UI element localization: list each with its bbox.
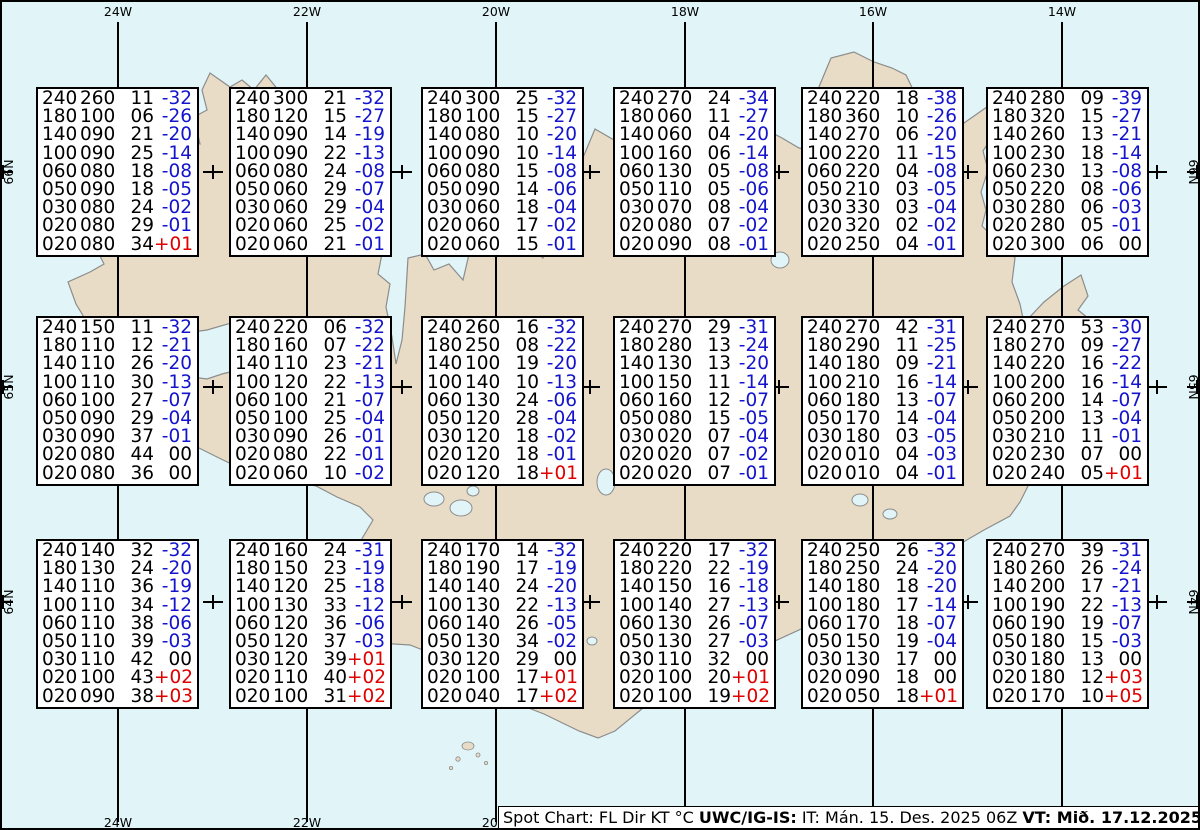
station-data-row: 14009021-20 (42, 126, 197, 144)
station-data-row: 14018009-21 (807, 355, 962, 373)
island (462, 742, 474, 750)
wind-direction: 090 (80, 126, 123, 144)
station-data-row: 14006004-20 (619, 126, 774, 144)
flight-level: 020 (807, 465, 845, 483)
wind-speed-kt: 24 (508, 578, 539, 596)
temperature-c: -19 (347, 126, 390, 144)
lake (883, 509, 897, 519)
flight-level: 020 (992, 688, 1030, 706)
latitude-label-left-66N: 66N (2, 155, 16, 189)
station-box-9: 24026016-3218025008-2214010019-201001401… (421, 316, 584, 486)
flight-level: 020 (42, 465, 80, 483)
wind-speed-kt: 23 (316, 355, 347, 373)
station-box-17: 24025026-3218025024-2014018018-201001801… (801, 539, 964, 709)
wind-direction: 080 (80, 217, 123, 235)
flight-level: 140 (807, 355, 845, 373)
graticule-cross (203, 380, 223, 394)
station-data-row: 02006021-01 (235, 236, 390, 254)
station-box-3: 24030025-3218010015-2714008010-201000901… (421, 87, 584, 257)
latitude-label-left-64N: 64N (2, 585, 16, 619)
wind-speed-kt: 17 (1073, 578, 1104, 596)
flight-level: 140 (427, 126, 465, 144)
station-data-row: 14022016-22 (992, 355, 1147, 373)
flight-level: 020 (427, 465, 465, 483)
station-data-row: 14011023-21 (235, 355, 390, 373)
temperature-c: -20 (919, 126, 962, 144)
flight-level: 020 (619, 688, 657, 706)
wind-speed-kt: 20 (700, 669, 731, 687)
wind-direction: 270 (845, 126, 888, 144)
flight-level: 020 (235, 669, 273, 687)
wind-speed-kt: 12 (1073, 669, 1104, 687)
station-data-row: 02006017-02 (427, 217, 582, 235)
station-data-row: 02008007-02 (619, 217, 774, 235)
wind-direction: 110 (80, 355, 123, 373)
wind-direction: 080 (657, 217, 700, 235)
station-data-row: 02008034+01 (42, 236, 197, 254)
wind-direction: 100 (273, 688, 316, 706)
flight-level: 140 (42, 578, 80, 596)
longitude-label-bottom-22W: 22W (293, 815, 321, 830)
temperature-c: -21 (919, 355, 962, 373)
temperature-c: 00 (1104, 446, 1147, 464)
wind-direction: 180 (845, 578, 888, 596)
flight-level: 020 (619, 236, 657, 254)
station-data-row: 02010031+02 (235, 688, 390, 706)
station-data-row: 02001004-01 (807, 465, 962, 483)
wind-speed-kt: 19 (700, 688, 731, 706)
wind-speed-kt: 36 (123, 578, 154, 596)
temperature-c: +03 (154, 688, 198, 706)
flight-level: 020 (427, 236, 465, 254)
wind-speed-kt: 17 (508, 217, 539, 235)
wind-direction: 120 (273, 578, 316, 596)
flight-level: 020 (235, 446, 273, 464)
flight-level: 020 (619, 446, 657, 464)
status-bar-text: Spot Chart: FL Dir KT °C (503, 808, 699, 827)
wind-speed-kt: 05 (1073, 217, 1104, 235)
wind-direction: 110 (273, 355, 316, 373)
wind-speed-kt: 44 (123, 446, 154, 464)
temperature-c: -01 (154, 217, 197, 235)
island (449, 766, 452, 769)
wind-speed-kt: 40 (316, 669, 347, 687)
wind-direction: 100 (80, 669, 123, 687)
wind-speed-kt: 14 (316, 126, 347, 144)
station-box-13: 24014032-3218013024-2014011036-191001103… (36, 539, 199, 709)
station-data-row: 14009014-19 (235, 126, 390, 144)
wind-direction: 060 (273, 236, 316, 254)
temperature-c: -20 (919, 578, 962, 596)
station-data-row: 02001004-03 (807, 446, 962, 464)
wind-direction: 130 (657, 355, 700, 373)
station-data-row: 0203000600 (992, 236, 1147, 254)
wind-direction: 140 (465, 578, 508, 596)
flight-level: 020 (807, 669, 845, 687)
station-data-row: 14014024-20 (427, 578, 582, 596)
flight-level: 020 (619, 465, 657, 483)
temperature-c: -01 (731, 236, 774, 254)
temperature-c: -20 (539, 578, 582, 596)
temperature-c: -18 (347, 578, 390, 596)
station-box-15: 24017014-3218019017-1914014024-201001302… (421, 539, 584, 709)
flight-level: 020 (992, 446, 1030, 464)
flight-level: 140 (235, 355, 273, 373)
temperature-c: 00 (919, 669, 962, 687)
flight-level: 140 (427, 578, 465, 596)
flight-level: 020 (992, 669, 1030, 687)
wind-speed-kt: 07 (700, 446, 731, 464)
temperature-c: -01 (731, 465, 774, 483)
wind-speed-kt: 07 (700, 217, 731, 235)
wind-direction: 090 (657, 236, 700, 254)
lake (450, 500, 472, 516)
temperature-c: -02 (731, 446, 774, 464)
temperature-c: -20 (539, 355, 582, 373)
wind-direction: 220 (1030, 355, 1073, 373)
wind-speed-kt: 06 (888, 126, 919, 144)
flight-level: 020 (992, 217, 1030, 235)
wind-speed-kt: 38 (123, 688, 154, 706)
wind-speed-kt: 21 (316, 236, 347, 254)
station-data-row: 02010020+01 (619, 669, 774, 687)
temperature-c: -21 (1104, 126, 1147, 144)
station-data-row: 14026013-21 (992, 126, 1147, 144)
temperature-c: +03 (1104, 669, 1148, 687)
wind-direction: 250 (845, 236, 888, 254)
station-box-4: 24027024-3418006011-2714006004-201001600… (613, 87, 776, 257)
flight-level: 140 (992, 126, 1030, 144)
flight-level: 140 (807, 578, 845, 596)
station-data-row: 02008029-01 (42, 217, 197, 235)
temperature-c: -20 (731, 355, 774, 373)
station-box-16: 24022017-3218022022-1914015016-181001402… (613, 539, 776, 709)
latitude-label-right-66N: 66N (1186, 155, 1200, 189)
wind-direction: 300 (1030, 236, 1073, 254)
graticule-cross (1147, 380, 1167, 394)
wind-direction: 060 (273, 217, 316, 235)
wind-direction: 060 (657, 126, 700, 144)
flight-level: 020 (619, 669, 657, 687)
temperature-c: +01 (1104, 465, 1148, 483)
station-box-12: 24027053-3018027009-2714022016-221002001… (986, 316, 1149, 486)
longitude-label-top-18W: 18W (671, 4, 699, 19)
wind-speed-kt: 04 (888, 236, 919, 254)
flight-level: 020 (807, 217, 845, 235)
longitude-label-top-20W: 20W (482, 4, 510, 19)
lake (467, 486, 479, 496)
temperature-c: -20 (154, 126, 197, 144)
station-box-7: 24015011-3218011012-2114011026-201001103… (36, 316, 199, 486)
flight-level: 020 (42, 236, 80, 254)
wind-speed-kt: 18 (508, 446, 539, 464)
wind-direction: 060 (465, 217, 508, 235)
lake (852, 494, 868, 506)
station-data-row: 02010019+02 (619, 688, 774, 706)
wind-speed-kt: 10 (1073, 688, 1104, 706)
wind-direction: 100 (657, 688, 700, 706)
station-box-10: 24027029-3118028013-2414013013-201001501… (613, 316, 776, 486)
wind-direction: 110 (273, 669, 316, 687)
wind-direction: 010 (845, 465, 888, 483)
wind-speed-kt: 43 (123, 669, 154, 687)
station-data-row: 02032002-02 (807, 217, 962, 235)
flight-level: 020 (235, 465, 273, 483)
island (476, 753, 480, 757)
flight-level: 020 (235, 217, 273, 235)
wind-direction: 080 (80, 465, 123, 483)
wind-speed-kt: 07 (1073, 446, 1104, 464)
wind-direction: 120 (465, 465, 508, 483)
wind-direction: 080 (80, 446, 123, 464)
longitude-label-bottom-24W: 24W (104, 815, 132, 830)
temperature-c: +02 (539, 688, 583, 706)
wind-speed-kt: 34 (123, 236, 154, 254)
station-box-14: 24016024-3118015023-1914012025-181001303… (229, 539, 392, 709)
graticule-cross (1147, 165, 1167, 179)
wind-direction: 020 (657, 446, 700, 464)
station-data-row: 14012025-18 (235, 578, 390, 596)
flight-level: 140 (807, 126, 845, 144)
station-data-row: 02011040+02 (235, 669, 390, 687)
temperature-c: +02 (731, 688, 775, 706)
flight-level: 140 (235, 578, 273, 596)
temperature-c: -20 (154, 355, 197, 373)
station-data-row: 02028005-01 (992, 217, 1147, 235)
wind-direction: 240 (1030, 465, 1073, 483)
wind-direction: 060 (465, 236, 508, 254)
temperature-c: +05 (1104, 688, 1148, 706)
flight-level: 020 (427, 688, 465, 706)
wind-speed-kt: 26 (123, 355, 154, 373)
wind-direction: 100 (465, 669, 508, 687)
wind-speed-kt: 05 (1073, 465, 1104, 483)
status-bar-bold-text: VT: Mið. 17.12.2025 00Z (1022, 808, 1200, 827)
station-box-6: 24028009-3918032015-2714026013-211002301… (986, 87, 1149, 257)
temperature-c: -21 (1104, 578, 1147, 596)
temperature-c: 00 (154, 446, 197, 464)
flight-level: 020 (807, 236, 845, 254)
temperature-c: +01 (731, 669, 775, 687)
wind-direction: 100 (657, 669, 700, 687)
temperature-c: -01 (539, 446, 582, 464)
wind-direction: 110 (80, 578, 123, 596)
status-bar-bold-text: UWC/IG-IS: (699, 808, 797, 827)
temperature-c: +02 (154, 669, 198, 687)
flight-level: 140 (619, 578, 657, 596)
flight-level: 020 (235, 688, 273, 706)
wind-direction: 020 (657, 465, 700, 483)
flight-level: 140 (42, 355, 80, 373)
station-data-row: 14011036-19 (42, 578, 197, 596)
wind-direction: 180 (1030, 669, 1073, 687)
station-data-row: 02009038+03 (42, 688, 197, 706)
temperature-c: -01 (919, 465, 962, 483)
temperature-c: -02 (347, 217, 390, 235)
temperature-c: +01 (919, 688, 963, 706)
flight-level: 020 (807, 688, 845, 706)
flight-level: 140 (619, 126, 657, 144)
flight-level: 140 (619, 355, 657, 373)
graticule-cross (203, 595, 223, 609)
station-data-row: 02006010-02 (235, 465, 390, 483)
station-data-row: 14015016-18 (619, 578, 774, 596)
station-data-row: 14011026-20 (42, 355, 197, 373)
wind-speed-kt: 15 (508, 236, 539, 254)
flight-level: 020 (42, 446, 80, 464)
status-bar-text: IT: Mán. 15. Des. 2025 06Z (797, 808, 1023, 827)
flight-level: 140 (992, 578, 1030, 596)
wind-direction: 090 (80, 688, 123, 706)
graticule-cross (392, 595, 412, 609)
station-data-row: 14018018-20 (807, 578, 962, 596)
wind-direction: 180 (845, 355, 888, 373)
station-box-2: 24030021-3218012015-2714009014-191000902… (229, 87, 392, 257)
wind-speed-kt: 17 (508, 669, 539, 687)
station-data-row: 02002007-01 (619, 465, 774, 483)
station-box-8: 24022006-3218016007-2214011023-211001202… (229, 316, 392, 486)
latitude-label-right-65N: 65N (1186, 370, 1200, 404)
temperature-c: +02 (347, 688, 391, 706)
wind-speed-kt: 02 (888, 217, 919, 235)
wind-direction: 280 (1030, 217, 1073, 235)
graticule-cross (1147, 595, 1167, 609)
flight-level: 020 (427, 446, 465, 464)
station-data-row: 14008010-20 (427, 126, 582, 144)
lake (587, 637, 597, 645)
flight-level: 140 (235, 126, 273, 144)
station-box-18: 24027039-3118026026-2414020017-211001902… (986, 539, 1149, 709)
wind-speed-kt: 08 (700, 236, 731, 254)
flight-level: 020 (807, 446, 845, 464)
latitude-label-left-65N: 65N (2, 370, 16, 404)
temperature-c: -20 (731, 126, 774, 144)
temperature-c: -20 (539, 126, 582, 144)
temperature-c: 00 (154, 465, 197, 483)
temperature-c: -01 (347, 446, 390, 464)
island (456, 757, 460, 761)
temperature-c: -03 (919, 446, 962, 464)
temperature-c: +01 (539, 465, 583, 483)
temperature-c: -21 (347, 355, 390, 373)
temperature-c: -01 (347, 236, 390, 254)
wind-speed-kt: 18 (888, 578, 919, 596)
longitude-label-top-16W: 16W (859, 4, 887, 19)
wind-speed-kt: 16 (1073, 355, 1104, 373)
temperature-c: -02 (347, 465, 390, 483)
wind-speed-kt: 13 (1073, 126, 1104, 144)
flight-level: 020 (42, 688, 80, 706)
wind-direction: 150 (657, 578, 700, 596)
wind-direction: 170 (1030, 688, 1073, 706)
graticule-cross (392, 165, 412, 179)
wind-speed-kt: 18 (888, 688, 919, 706)
wind-direction: 040 (465, 688, 508, 706)
station-data-row: 02025004-01 (807, 236, 962, 254)
wind-direction: 120 (465, 446, 508, 464)
wind-speed-kt: 09 (888, 355, 919, 373)
station-data-row: 0200804400 (42, 446, 197, 464)
wind-direction: 090 (273, 126, 316, 144)
longitude-label-top-22W: 22W (293, 4, 321, 19)
flight-level: 020 (619, 217, 657, 235)
longitude-label-top-24W: 24W (104, 4, 132, 19)
wind-direction: 080 (273, 446, 316, 464)
temperature-c: 00 (1104, 236, 1147, 254)
station-data-row: 02017010+05 (992, 688, 1147, 706)
temperature-c: -22 (1104, 355, 1147, 373)
wind-direction: 080 (80, 236, 123, 254)
flight-level: 140 (992, 355, 1030, 373)
wind-speed-kt: 25 (316, 578, 347, 596)
station-data-row: 02008022-01 (235, 446, 390, 464)
station-data-row: 02010017+01 (427, 669, 582, 687)
temperature-c: +02 (347, 669, 391, 687)
station-data-row: 0200901800 (807, 669, 962, 687)
lake (424, 492, 444, 506)
flight-level: 020 (427, 217, 465, 235)
wind-speed-kt: 22 (316, 446, 347, 464)
wind-direction: 320 (845, 217, 888, 235)
wind-speed-kt: 10 (316, 465, 347, 483)
island (484, 761, 487, 764)
station-data-row: 02006015-01 (427, 236, 582, 254)
wind-speed-kt: 13 (700, 355, 731, 373)
wind-speed-kt: 04 (700, 126, 731, 144)
temperature-c: -01 (539, 236, 582, 254)
wind-speed-kt: 18 (888, 669, 919, 687)
temperature-c: -01 (1104, 217, 1147, 235)
station-data-row: 02018012+03 (992, 669, 1147, 687)
wind-speed-kt: 10 (508, 126, 539, 144)
flight-level: 020 (235, 236, 273, 254)
latitude-label-right-64N: 64N (1186, 585, 1200, 619)
flight-level: 140 (427, 355, 465, 373)
temperature-c: -02 (919, 217, 962, 235)
wind-speed-kt: 16 (700, 578, 731, 596)
wind-direction: 200 (1030, 578, 1073, 596)
wind-direction: 090 (845, 669, 888, 687)
temperature-c: +01 (539, 669, 583, 687)
station-data-row: 14020017-21 (992, 578, 1147, 596)
wind-direction: 050 (845, 688, 888, 706)
wind-speed-kt: 36 (123, 465, 154, 483)
wind-speed-kt: 29 (123, 217, 154, 235)
graticule-cross (203, 165, 223, 179)
wind-direction: 100 (465, 355, 508, 373)
graticule-cross (392, 380, 412, 394)
temperature-c: +01 (154, 236, 198, 254)
wind-speed-kt: 19 (508, 355, 539, 373)
station-data-row: 02004017+02 (427, 688, 582, 706)
station-data-row: 02024005+01 (992, 465, 1147, 483)
station-data-row: 02005018+01 (807, 688, 962, 706)
temperature-c: -02 (539, 217, 582, 235)
wind-direction: 230 (1030, 446, 1073, 464)
station-box-1: 24026011-3218010006-2614009021-201000902… (36, 87, 199, 257)
wind-speed-kt: 21 (123, 126, 154, 144)
station-data-row: 02012018+01 (427, 465, 582, 483)
temperature-c: -01 (919, 236, 962, 254)
flight-level: 020 (992, 465, 1030, 483)
flight-level: 020 (992, 236, 1030, 254)
flight-level: 020 (42, 217, 80, 235)
station-data-row: 02009008-01 (619, 236, 774, 254)
spot-chart-map: 24W24W22W22W20W20W18W18W16W16W14W14W66N6… (0, 0, 1200, 830)
wind-speed-kt: 31 (316, 688, 347, 706)
flight-level: 020 (427, 669, 465, 687)
longitude-label-top-14W: 14W (1048, 4, 1076, 19)
